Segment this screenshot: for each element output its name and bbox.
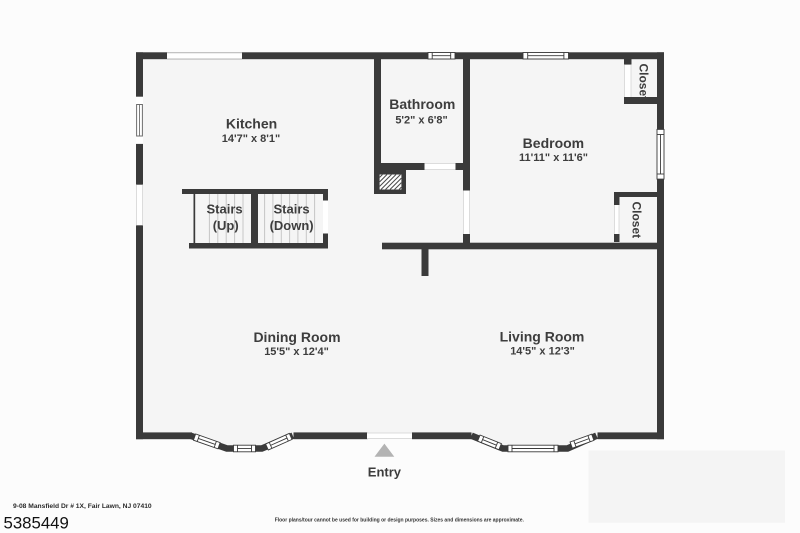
svg-text:Bedroom: Bedroom [523,135,584,151]
svg-text:15'5" x 12'4": 15'5" x 12'4" [264,346,329,358]
svg-text:5385449: 5385449 [4,514,69,533]
svg-text:Closet: Closet [637,63,651,100]
svg-text:14'7" x 8'1": 14'7" x 8'1" [222,133,280,145]
svg-text:Entry: Entry [368,464,402,479]
svg-text:Closet: Closet [630,201,644,238]
svg-text:Bathroom: Bathroom [389,96,455,112]
svg-text:(Down): (Down) [270,218,314,233]
svg-text:5'2" x 6'8": 5'2" x 6'8" [395,115,447,127]
svg-text:Living Room: Living Room [500,328,585,344]
svg-text:Dining Room: Dining Room [253,329,340,345]
svg-text:(Up): (Up) [213,218,239,233]
svg-text:Kitchen: Kitchen [226,116,277,132]
svg-text:Stairs: Stairs [274,202,310,217]
svg-text:14'5" x 12'3": 14'5" x 12'3" [510,346,575,358]
svg-text:11'11" x 11'6": 11'11" x 11'6" [519,152,588,164]
svg-text:Floor plans/tour cannot be use: Floor plans/tour cannot be used for buil… [275,518,525,524]
svg-text:Stairs: Stairs [207,202,243,217]
svg-text:9-08 Mansfield Dr # 1X, Fair L: 9-08 Mansfield Dr # 1X, Fair Lawn, NJ 07… [13,503,152,510]
